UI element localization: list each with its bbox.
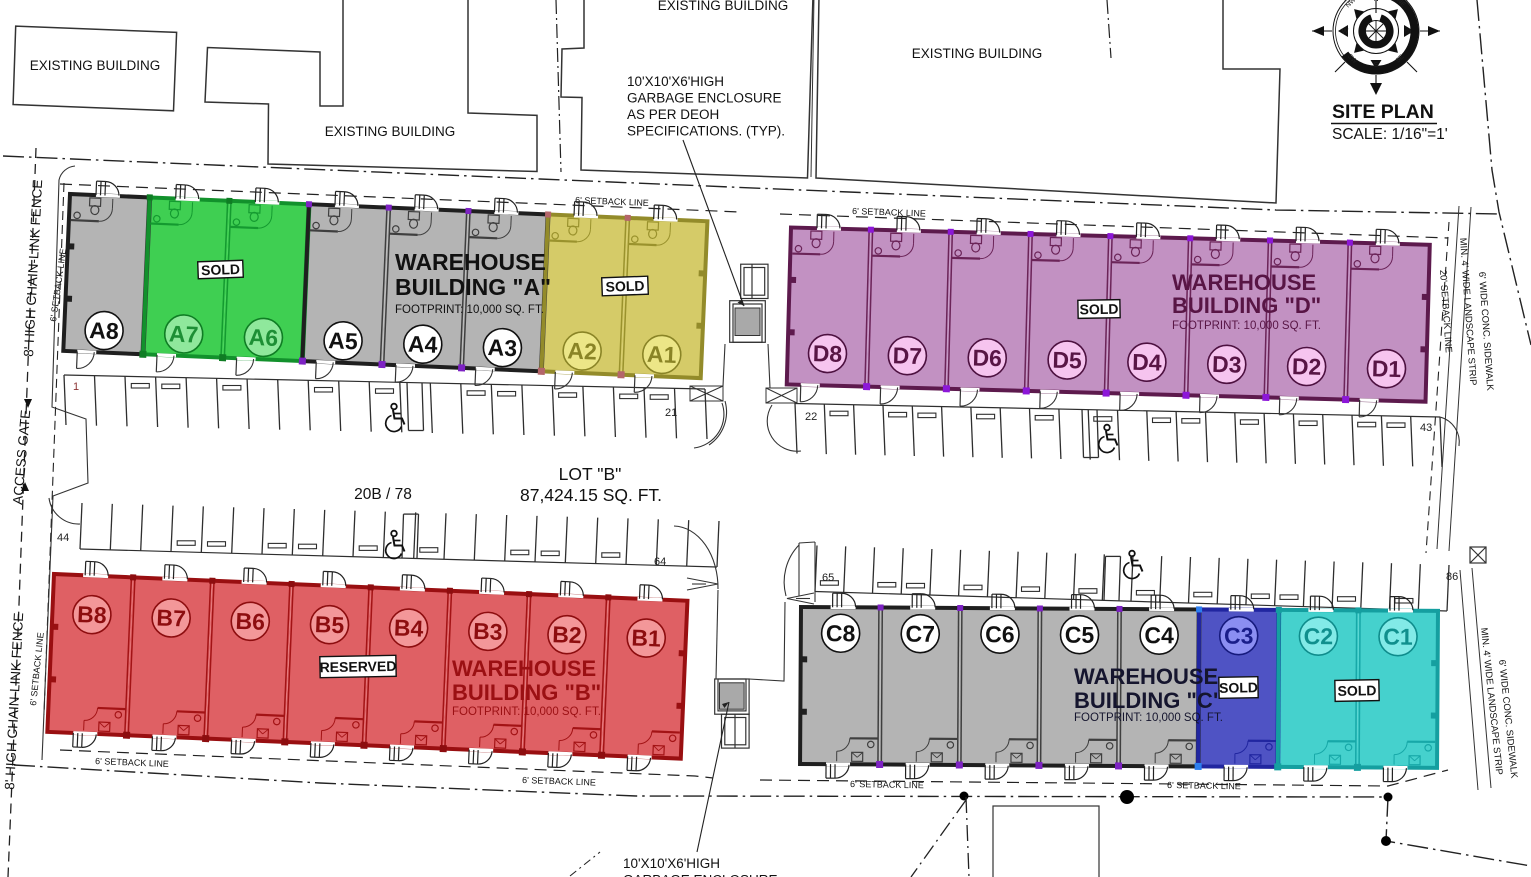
- svg-text:1: 1: [73, 381, 79, 393]
- svg-text:A5: A5: [328, 327, 359, 354]
- svg-text:C7: C7: [905, 621, 935, 647]
- svg-text:B8: B8: [77, 601, 108, 628]
- svg-text:N: N: [1373, 0, 1378, 3]
- svg-text:C4: C4: [1144, 622, 1174, 648]
- svg-text:B2: B2: [552, 621, 582, 648]
- svg-text:SOLD: SOLD: [605, 277, 644, 294]
- svg-text:A4: A4: [408, 331, 439, 358]
- svg-text:S: S: [1374, 62, 1379, 69]
- svg-text:WAREHOUSEBUILDING "B": WAREHOUSEBUILDING "B": [452, 656, 601, 705]
- svg-text:C5: C5: [1065, 622, 1095, 648]
- svg-text:D6: D6: [972, 344, 1002, 371]
- svg-text:86: 86: [1446, 571, 1458, 583]
- svg-text:EXISTING BUILDING: EXISTING BUILDING: [325, 124, 456, 139]
- svg-text:EXISTING BUILDING: EXISTING BUILDING: [30, 58, 161, 73]
- svg-text:WAREHOUSEBUILDING "C": WAREHOUSEBUILDING "C": [1074, 664, 1223, 713]
- svg-text:SITE PLAN: SITE PLAN: [1332, 101, 1434, 123]
- svg-text:A2: A2: [567, 337, 597, 364]
- svg-text:A1: A1: [647, 341, 678, 368]
- svg-text:SOLD: SOLD: [1219, 679, 1258, 696]
- svg-text:B5: B5: [314, 611, 345, 638]
- svg-text:22: 22: [805, 411, 817, 423]
- svg-text:87,424.15 SQ. FT.: 87,424.15 SQ. FT.: [520, 485, 662, 505]
- svg-text:43: 43: [1420, 422, 1432, 434]
- svg-text:SOLD: SOLD: [1337, 682, 1376, 699]
- svg-text:FOOTPRINT: 10,000 SQ. FT.: FOOTPRINT: 10,000 SQ. FT.: [395, 304, 544, 316]
- svg-text:SOLD: SOLD: [1079, 301, 1118, 318]
- svg-text:D4: D4: [1132, 349, 1162, 376]
- svg-text:WAREHOUSEBUILDING "A": WAREHOUSEBUILDING "A": [395, 249, 551, 300]
- svg-text:D5: D5: [1052, 347, 1082, 374]
- svg-text:D2: D2: [1292, 353, 1322, 380]
- svg-text:A7: A7: [168, 320, 198, 347]
- svg-text:C1: C1: [1383, 624, 1413, 650]
- svg-text:44: 44: [57, 532, 69, 544]
- svg-text:6' SETBACK LINE: 6' SETBACK LINE: [850, 779, 924, 790]
- svg-text:FOOTPRINT: 10,000 SQ. FT.: FOOTPRINT: 10,000 SQ. FT.: [1074, 712, 1223, 724]
- svg-text:B6: B6: [235, 608, 265, 635]
- svg-text:LOT "B": LOT "B": [559, 464, 622, 484]
- svg-text:C6: C6: [985, 621, 1015, 647]
- svg-text:B7: B7: [156, 604, 186, 631]
- svg-text:FOOTPRINT: 10,000 SQ. FT.: FOOTPRINT: 10,000 SQ. FT.: [452, 706, 601, 718]
- svg-text:20B / 78: 20B / 78: [354, 486, 412, 503]
- svg-text:WAREHOUSEBUILDING "D": WAREHOUSEBUILDING "D": [1172, 270, 1321, 318]
- svg-text:W: W: [1342, 29, 1349, 36]
- svg-text:C3: C3: [1224, 623, 1254, 649]
- svg-text:B3: B3: [473, 618, 503, 645]
- svg-text:21: 21: [665, 407, 677, 419]
- svg-text:D3: D3: [1212, 351, 1242, 378]
- svg-text:A6: A6: [248, 324, 278, 351]
- svg-text:6' SETBACK LINE: 6' SETBACK LINE: [1167, 780, 1241, 791]
- svg-text:D8: D8: [812, 340, 842, 367]
- svg-text:65: 65: [822, 572, 834, 584]
- svg-text:SCALE: 1/16"=1': SCALE: 1/16"=1': [1332, 126, 1448, 143]
- svg-text:B4: B4: [393, 614, 424, 641]
- svg-text:A8: A8: [89, 317, 120, 344]
- svg-text:C8: C8: [826, 620, 856, 646]
- svg-text:C2: C2: [1304, 623, 1334, 649]
- svg-text:SOLD: SOLD: [201, 261, 240, 278]
- svg-text:D1: D1: [1371, 355, 1401, 382]
- svg-text:FOOTPRINT: 10,000 SQ. FT.: FOOTPRINT: 10,000 SQ. FT.: [1172, 320, 1321, 332]
- svg-text:B1: B1: [631, 624, 662, 651]
- svg-text:EXISTING BUILDING: EXISTING BUILDING: [912, 46, 1043, 61]
- svg-text:64: 64: [654, 556, 666, 568]
- svg-text:D7: D7: [892, 342, 922, 369]
- svg-text:A3: A3: [487, 334, 517, 361]
- svg-text:m: m: [1405, 29, 1411, 36]
- svg-text:RESERVED: RESERVED: [319, 658, 396, 675]
- svg-text:EXISTING BUILDING: EXISTING BUILDING: [658, 0, 789, 13]
